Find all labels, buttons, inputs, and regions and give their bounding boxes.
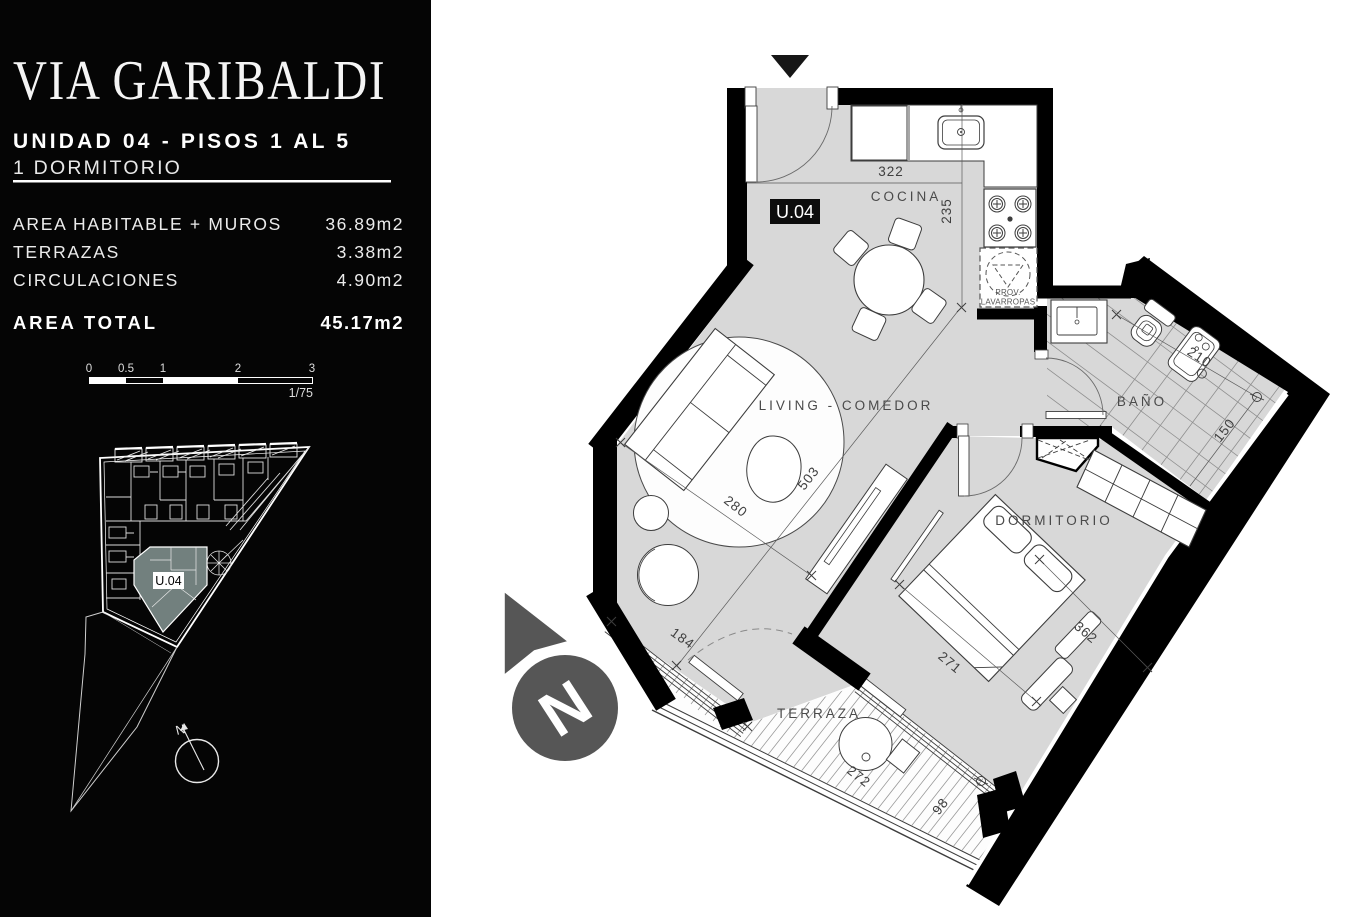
svg-text:UNIDAD 04 - PISOS 1 AL 5: UNIDAD 04 - PISOS 1 AL 5 xyxy=(13,130,351,153)
svg-text:COCINA: COCINA xyxy=(871,189,942,204)
svg-text:45.17m2: 45.17m2 xyxy=(320,312,404,333)
svg-text:PROV.: PROV. xyxy=(995,288,1020,297)
svg-text:4.90m2: 4.90m2 xyxy=(337,270,404,290)
svg-text:3: 3 xyxy=(309,363,315,375)
svg-text:2: 2 xyxy=(235,363,241,375)
svg-text:TERRAZAS: TERRAZAS xyxy=(13,242,120,262)
svg-text:CIRCULACIONES: CIRCULACIONES xyxy=(13,270,179,290)
svg-text:U.04: U.04 xyxy=(776,202,814,222)
svg-text:36.89m2: 36.89m2 xyxy=(325,214,404,234)
svg-text:LAVARROPAS: LAVARROPAS xyxy=(981,298,1035,307)
svg-text:DORMITORIO: DORMITORIO xyxy=(995,513,1113,528)
svg-text:1 DORMITORIO: 1 DORMITORIO xyxy=(13,157,182,179)
svg-text:0.5: 0.5 xyxy=(118,363,134,375)
svg-text:322: 322 xyxy=(878,164,904,179)
svg-text:VIA GARIBALDI: VIA GARIBALDI xyxy=(13,50,386,112)
svg-text:0: 0 xyxy=(86,363,92,375)
svg-text:3.38m2: 3.38m2 xyxy=(337,242,404,262)
svg-text:AREA HABITABLE + MUROS: AREA HABITABLE + MUROS xyxy=(13,214,282,234)
svg-text:LIVING - COMEDOR: LIVING - COMEDOR xyxy=(759,398,934,413)
svg-text:AREA TOTAL: AREA TOTAL xyxy=(13,312,158,333)
svg-text:BAÑO: BAÑO xyxy=(1117,394,1167,409)
svg-text:235: 235 xyxy=(939,198,954,224)
svg-text:TERRAZA: TERRAZA xyxy=(777,706,861,721)
svg-text:1/75: 1/75 xyxy=(289,386,313,400)
svg-text:U.04: U.04 xyxy=(155,574,181,588)
svg-text:1: 1 xyxy=(160,363,166,375)
